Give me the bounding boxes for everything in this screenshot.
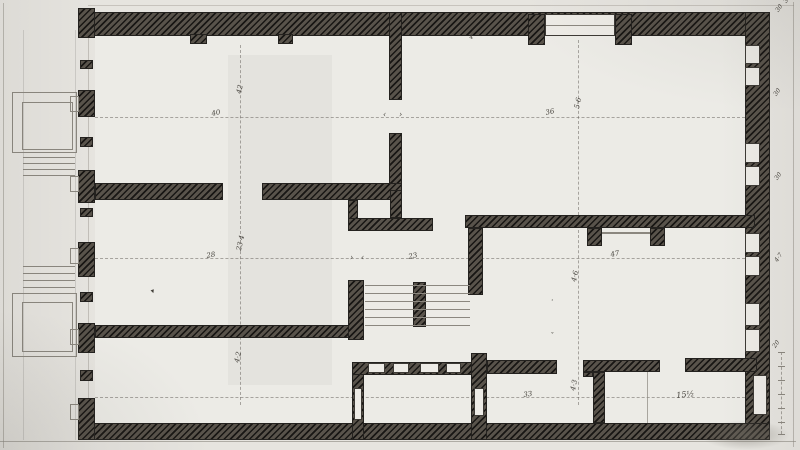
annotation-tick-caron: ˇ [550, 333, 554, 340]
floor-plan-sheet: 4042+365·64‹›2823·4›‹23474·6▾334·315½4·2… [0, 0, 800, 450]
annotation-tick-dot: · [551, 297, 554, 305]
annotation-arrow-left-stair: ‹ [361, 254, 364, 262]
annotation-margin-30c: 30 [774, 172, 783, 182]
annotation-dim-40: 40 [211, 109, 221, 118]
annotation-dim-5-6: 5·6 [574, 97, 583, 109]
annotation-ink-mark: ▾ [150, 288, 156, 296]
annotation-dim-4-2: 4·2 [234, 351, 243, 363]
annotation-margin-30b: 30 [773, 88, 782, 98]
annotation-arrow-left-top: ‹ [383, 111, 386, 119]
annotation-dim-33: 33 [523, 391, 533, 399]
annotation-margin-4-7: 4·7 [774, 252, 784, 263]
annotation-dim-23-4: 23·4 [236, 235, 246, 252]
annotation-mark-plus: + [238, 16, 243, 22]
annotation-dim-28: 28 [206, 251, 216, 259]
annotation-dim-42: 42 [236, 84, 245, 94]
annotation-dim-4-3: 4·3 [570, 379, 579, 391]
annotation-dim-4-6: 4·6 [571, 270, 580, 282]
annotation-margin-20: 20 [772, 340, 781, 350]
annotation-dim-15-half: 15½ [676, 390, 695, 400]
annotation-margin-30a: 30 [775, 4, 784, 14]
annotation-dim-47: 47 [610, 250, 620, 259]
annotation-layer: 4042+365·64‹›2823·4›‹23474·6▾334·315½4·2… [0, 0, 800, 450]
annotation-arrow-right-stair: › [350, 254, 353, 262]
annotation-arrow-right-top: › [399, 111, 402, 119]
annotation-dim-36: 36 [545, 108, 555, 117]
annotation-dim-4-door: 4 [469, 34, 474, 41]
annotation-margin-36: 36 [783, 0, 792, 4]
annotation-dim-23: 23 [408, 252, 418, 261]
